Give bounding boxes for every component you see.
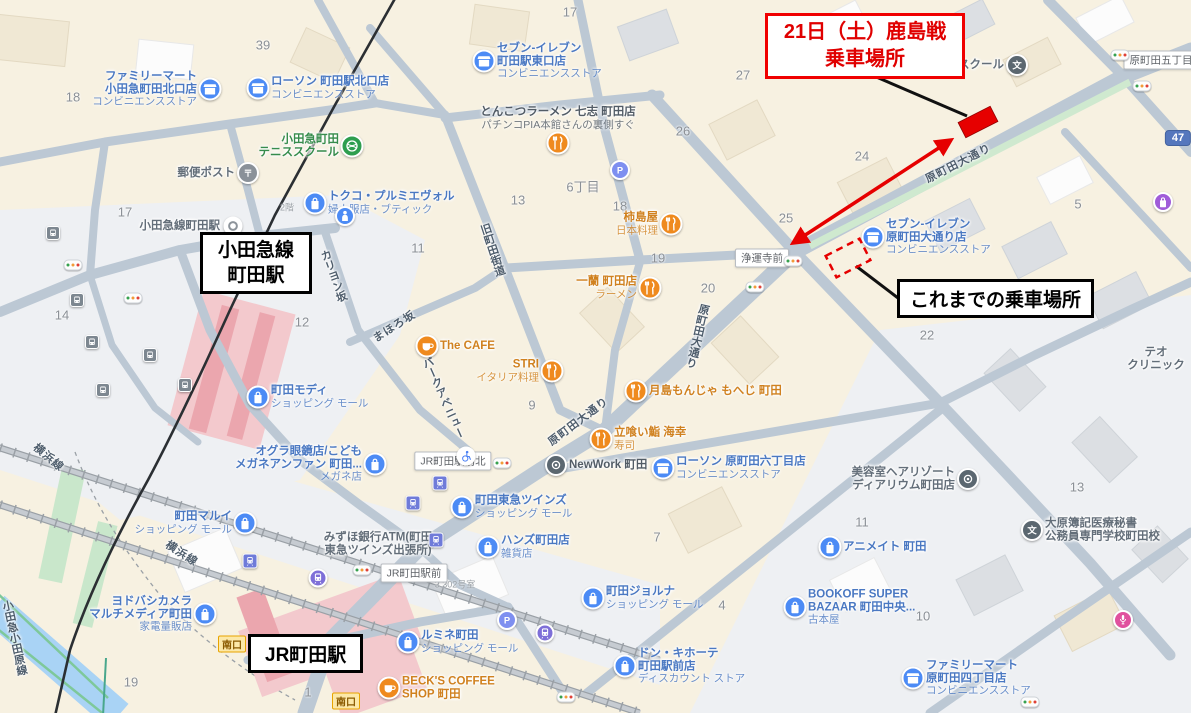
poi-label-line: クリニック [1127, 359, 1185, 372]
poi-label: 町田マルイショッピング モール [135, 511, 232, 536]
poi-label-line: 町田モディ [271, 385, 368, 398]
street-name-label: 横浜線 [163, 536, 202, 569]
new-boarding-annotation-box: 21日（土）鹿島戦 乗車場所 [765, 13, 965, 79]
poi-label: BOOKOFF SUPERBAZAAR 町田中央...古本屋 [808, 588, 915, 626]
rest-icon [547, 132, 570, 155]
block-number: 4 [718, 598, 725, 613]
poi-label-line: ファミリーマート [92, 70, 197, 83]
street-name-label: 横浜線 [30, 439, 68, 474]
svg-text:〒: 〒 [243, 168, 252, 178]
poi-label-line: 美容室ヘアリゾート [852, 467, 956, 480]
poi-label-line: マルチメディア町田 [89, 608, 192, 621]
bag-icon [234, 512, 257, 535]
block-number: 17 [563, 5, 577, 20]
poi-label-line: NewWork 町田 [569, 459, 647, 472]
block-number: 1 [304, 685, 311, 700]
traffic-light-icon [557, 692, 576, 703]
block-number: 18 [66, 90, 80, 105]
poi-label-line: 原町田四丁目店 [926, 672, 1031, 685]
poi-label: ファミリーマート小田急町田北口店コンビニエンスストア [92, 70, 197, 108]
poi-sublabel-line: ショッピング モール [271, 397, 368, 410]
poi-label: 郵便ポスト [178, 167, 236, 180]
poi-sublabel-line: パチンコPIA本館さんの裏側すぐ [480, 119, 635, 132]
traffic-light-icon [493, 458, 512, 469]
poi-label-line: オグラ眼鏡店/こども [235, 445, 362, 458]
poi-label-line: 大原簿記医療秘書 [1045, 518, 1160, 531]
poi-label-line: 原町田大通り店 [886, 231, 991, 244]
poi-label-line: 町田ジョルナ [606, 586, 703, 599]
trainsq-icon [243, 554, 258, 569]
block-number: 19 [651, 251, 665, 266]
poi-label-line: みずほ銀行ATM(町田 [324, 532, 432, 545]
previous-boarding-annotation-box: これまでの乗車場所 [897, 279, 1094, 318]
poi-label-line: 郵便ポスト [178, 167, 236, 180]
poi-label: 町田東急ツインズショッピング モール [475, 495, 572, 520]
poi-sublabel-line: コンビニエンスストア [926, 684, 1031, 697]
poi-label-line: ハンズ町田店 [501, 535, 570, 548]
map-canvas[interactable]: 1839171727262425186丁目1311121920922514131… [0, 0, 1191, 713]
poi-label: NewWork 町田 [569, 459, 647, 472]
jr-station-annotation-box: JR町田駅 [248, 634, 363, 673]
block-number: 20 [701, 281, 715, 296]
bus-stop-icon[interactable] [178, 378, 192, 392]
poi-label: アニメイト 町田 [843, 541, 926, 554]
poi-label-line: 立喰い鮨 海幸 [614, 427, 686, 440]
poi-label-line: 公務員専門学校町田校 [1045, 530, 1160, 543]
traffic-light-icon [1111, 50, 1130, 61]
poi-sublabel-line: 寿司 [614, 439, 686, 452]
street-name-label: 原町田大通り [682, 302, 712, 370]
block-number: 12 [295, 315, 309, 330]
station-gate-label: 南口 [332, 693, 360, 710]
poi-sublabel-line: メガネ店 [235, 470, 362, 483]
street-name-label: 原町田大通り [922, 140, 993, 187]
bag-icon [194, 603, 217, 626]
ball-icon [341, 135, 364, 158]
odakyu-box-line1: 小田急線 [203, 238, 309, 263]
street-name-label: まほろ坂 [370, 306, 419, 346]
bag-icon [451, 496, 474, 519]
svg-text:文: 文 [1011, 59, 1022, 70]
block-number: 25 [779, 211, 793, 226]
poi-label-line: アニメイト 町田 [843, 541, 926, 554]
poi-label: みずほ銀行ATM(町田東急ツインズ出張所) [324, 532, 432, 557]
labels-layer: 1839171727262425186丁目1311121920922514131… [0, 0, 1191, 713]
block-number: 10 [916, 609, 930, 624]
poi-label-line: ファミリーマート [926, 659, 1031, 672]
poi-sublabel-line: イタリア料理 [476, 371, 539, 384]
traffic-light-icon [353, 565, 372, 576]
bus-stop-icon[interactable] [96, 383, 110, 397]
poi-label: BECK'S COFFEESHOP 町田 [402, 676, 495, 701]
rest-icon [660, 213, 683, 236]
poi-label-line: テオ [1127, 347, 1185, 360]
dot-icon [545, 454, 567, 476]
poi-label: テオクリニック [1127, 347, 1185, 372]
store-icon [247, 77, 270, 100]
poi-label-line: BOOKOFF SUPER [808, 588, 915, 601]
poi-label: ローソン 町田駅北口店コンビニエンスストア [271, 76, 389, 101]
poi-sublabel-line: コンビニエンスストア [497, 67, 602, 80]
poi-label: The CAFE [440, 340, 495, 353]
route-shield: 47 [1165, 130, 1191, 146]
odakyu-station-annotation-box: 小田急線 町田駅 [200, 232, 312, 294]
poi-label-line: 一蘭 町田店 [576, 276, 637, 289]
intersection-label: JR町田駅前 [381, 564, 448, 583]
poi-label-line: 小田急線町田駅 [140, 220, 221, 233]
poi-label: 柿島屋日本料理 [616, 212, 658, 237]
trainsq-icon [406, 496, 421, 511]
poi-label-line: 東急ツインズ出張所) [324, 544, 432, 557]
poi-label-line: ルミネ町田 [421, 630, 518, 643]
svg-text:P: P [617, 165, 623, 175]
poi-label: セブン-イレブン原町田大通り店コンビニエンスストア [886, 218, 991, 256]
poi-label-line: BECK'S COFFEE [402, 676, 495, 689]
block-number: 7 [653, 530, 660, 545]
poi-label: ドン・キホーテ町田駅前店ディスカウント ストア [638, 647, 745, 685]
p-icon: P [610, 160, 630, 180]
poi-sublabel-line: コンビニエンスストア [676, 468, 806, 481]
poi-label: 小田急線町田駅 [140, 220, 221, 233]
poi-sublabel-line: 雑貨店 [501, 547, 570, 560]
block-number: 13 [1070, 480, 1084, 495]
poi-label-line: SHOP 町田 [402, 688, 495, 701]
poi-sublabel-line: コンビニエンスストア [271, 88, 389, 101]
street-name-label: 旧町田街道 [476, 221, 508, 278]
poi-label: 一蘭 町田店ラーメン [576, 276, 637, 301]
poi-label-line: ディアリウム町田店 [852, 479, 956, 492]
block-number: 17 [118, 205, 132, 220]
poi-label-line: STRI [476, 359, 539, 372]
bus-stop-icon[interactable] [46, 226, 60, 240]
poi-label: 町田ジョルナショッピング モール [606, 586, 703, 611]
traffic-light-icon [124, 293, 143, 304]
poi-sublabel-line: ラーメン [576, 288, 637, 301]
wheel-icon [457, 447, 476, 466]
poi-sublabel-line: ショッピング モール [606, 598, 703, 611]
intersection-label: 原町田五丁目 [1124, 51, 1191, 70]
block-number: 11 [411, 241, 425, 256]
dot-icon [957, 468, 979, 490]
block-number: 26 [676, 124, 690, 139]
poi-label: 立喰い鮨 海幸寿司 [614, 427, 686, 452]
traffic-light-icon [64, 260, 83, 271]
traffic-light-icon [1133, 81, 1152, 92]
poi-label: オグラ眼鏡店/こどもメガネアンファン 町田...メガネ店 [235, 445, 362, 483]
poi-sublabel-line: 古本屋 [808, 613, 915, 626]
train-icon [309, 569, 328, 588]
trainsq-icon [433, 476, 448, 491]
poi-label-line: メガネアンファン 町田... [235, 458, 362, 471]
block-number: 27 [736, 68, 750, 83]
jr-box-label: JR町田駅 [265, 640, 346, 667]
bag-icon [247, 386, 270, 409]
poi-label: ルミネ町田ショッピング モール [421, 630, 518, 655]
rest-icon [590, 428, 613, 451]
block-number: 24 [855, 149, 869, 164]
poi-label-line: 町田マルイ [135, 511, 232, 524]
poi-sublabel-line: ショッピング モール [475, 507, 572, 520]
odakyu-box-line2: 町田駅 [203, 263, 309, 288]
person-icon [335, 206, 355, 226]
bag-icon [397, 631, 420, 654]
poi-label: とんこつラーメン 七志 町田店パチンコPIA本館さんの裏側すぐ [480, 106, 635, 131]
poi-sublabel-line: コンビニエンスストア [886, 243, 991, 256]
poi-label-line: 町田東急ツインズ [475, 495, 572, 508]
previous-boarding-label: これまでの乗車場所 [910, 285, 1081, 312]
store-icon [862, 226, 885, 249]
rest-icon [625, 380, 648, 403]
cafe-icon [416, 335, 439, 358]
bus-stop-icon[interactable] [70, 293, 84, 307]
bag-icon [582, 587, 605, 610]
poi-label-line: ドン・キホーテ [638, 647, 745, 660]
poi-label-line: 月島もんじゃ もへじ 町田 [649, 385, 782, 398]
rest-icon [639, 277, 662, 300]
poi-label-line: ローソン 原町田六丁目店 [676, 456, 806, 469]
new-boarding-line2: 乗車場所 [768, 46, 962, 73]
bus-stop-icon[interactable] [85, 335, 99, 349]
mic-icon [1113, 610, 1133, 630]
bag-icon [819, 536, 842, 559]
block-number: 14 [55, 308, 69, 323]
poi-label-line: トクコ・プルミエヴォル [328, 191, 455, 204]
store-icon [652, 457, 675, 480]
intersection-label: JR町田駅前北 [414, 452, 491, 471]
traffic-light-icon [784, 256, 803, 267]
poi-sublabel-line: ディスカウント ストア [638, 672, 745, 685]
school-icon: 文 [1006, 54, 1028, 76]
store-icon [199, 78, 222, 101]
poi-label-line: 町田駅前店 [638, 660, 745, 673]
poi-label: 美容室ヘアリゾートディアリウム町田店 [852, 467, 956, 492]
street-name-label: パークアベニュー [418, 355, 468, 442]
poi-label-line: 小田急町田 [259, 134, 340, 147]
train-icon [536, 624, 555, 643]
block-number: 6丁目 [566, 177, 599, 196]
poi-label: STRIイタリア料理 [476, 359, 539, 384]
poi-label: 月島もんじゃ もへじ 町田 [649, 385, 782, 398]
map-small-label: 2階 [280, 201, 294, 214]
cafe-icon [378, 677, 401, 700]
station-gate-label: 南口 [218, 636, 246, 653]
poi-label-line: セブン-イレブン [886, 218, 991, 231]
poi-label: 町田モディショッピング モール [271, 385, 368, 410]
block-number: 13 [511, 193, 525, 208]
poi-sublabel-line: コンビニエンスストア [92, 95, 197, 108]
block-number: 5 [1074, 197, 1081, 212]
bag-icon [304, 192, 327, 215]
bus-stop-icon[interactable] [143, 348, 157, 362]
bag-icon [364, 453, 387, 476]
school-icon: 文 [1021, 519, 1043, 541]
poi-label: ハンズ町田店雑貨店 [501, 535, 570, 560]
traffic-light-icon [1021, 697, 1040, 708]
poi-label-line: ローソン 町田駅北口店 [271, 76, 389, 89]
shop-icon [1153, 192, 1173, 212]
poi-label: ローソン 原町田六丁目店コンビニエンスストア [676, 456, 806, 481]
poi-label-line: ヨドバシカメラ [89, 595, 192, 608]
poi-label-line: とんこつラーメン 七志 町田店 [480, 106, 635, 119]
store-icon [902, 667, 925, 690]
poi-label-line: 柿島屋 [616, 212, 658, 225]
poi-sublabel-line: 日本料理 [616, 224, 658, 237]
poi-label-line: テニススクール [259, 146, 340, 159]
poi-label: ヨドバシカメラマルチメディア町田家電量販店 [89, 595, 192, 633]
rest-icon [541, 360, 564, 383]
street-name-label: カリヨン坂 [316, 247, 350, 304]
poi-sublabel-line: ショッピング モール [135, 523, 232, 536]
street-name-label: 小田急小田原線 [0, 599, 30, 678]
poi-label: セブン-イレブン町田駅東口店コンビニエンスストア [497, 42, 602, 80]
trainsq-icon [429, 533, 444, 548]
poi-sublabel-line: ショッピング モール [421, 642, 518, 655]
svg-text:文: 文 [1026, 524, 1037, 535]
intersection-label: 浄運寺前 [735, 249, 789, 268]
poi-label: ファミリーマート原町田四丁目店コンビニエンスストア [926, 659, 1031, 697]
block-number: 11 [855, 515, 869, 530]
block-number: 39 [256, 38, 270, 53]
block-number: 22 [920, 328, 934, 343]
p-icon: P [497, 610, 517, 630]
poi-label-line: 小田急町田北口店 [92, 83, 197, 96]
bag-icon [784, 596, 807, 619]
poi-label-line: セブン-イレブン [497, 42, 602, 55]
store-icon [473, 50, 496, 73]
post-icon: 〒 [237, 162, 259, 184]
poi-sublabel-line: 家電量販店 [89, 620, 192, 633]
block-number: 19 [124, 675, 138, 690]
poi-label-line: 町田駅東口店 [497, 55, 602, 68]
svg-text:P: P [504, 615, 510, 625]
bag-icon [614, 655, 637, 678]
new-boarding-line1: 21日（土）鹿島戦 [768, 19, 962, 46]
bag-icon [477, 536, 500, 559]
poi-label: 小田急町田テニススクール [259, 134, 340, 159]
traffic-light-icon [746, 282, 765, 293]
poi-label-line: BAZAAR 町田中央... [808, 601, 915, 614]
poi-label-line: The CAFE [440, 340, 495, 353]
poi-label: 大原簿記医療秘書公務員専門学校町田校 [1045, 518, 1160, 543]
block-number: 9 [528, 398, 535, 413]
